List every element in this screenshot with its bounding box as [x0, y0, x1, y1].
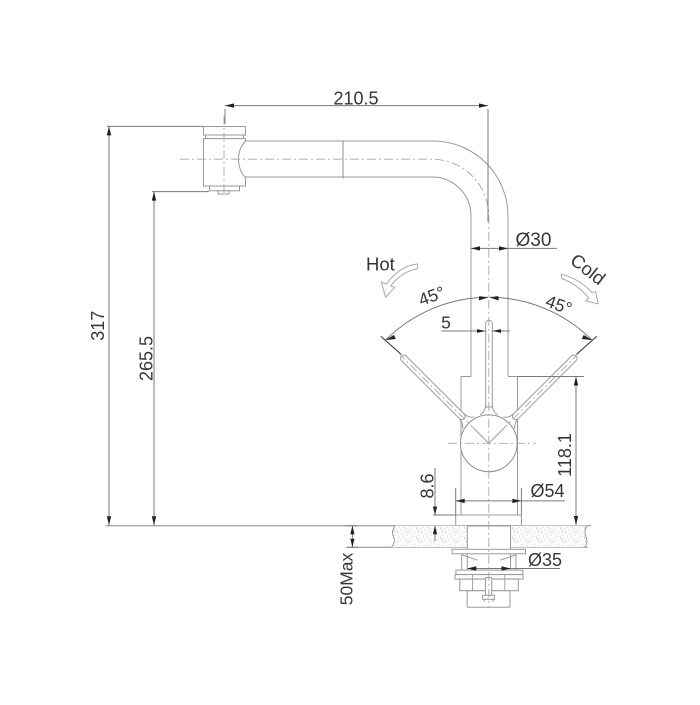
svg-text:8.6: 8.6: [418, 473, 438, 498]
svg-text:Ø30: Ø30: [516, 230, 552, 251]
svg-text:5: 5: [441, 313, 451, 333]
svg-text:Ø35: Ø35: [528, 550, 562, 570]
svg-text:45°: 45°: [543, 291, 575, 319]
svg-text:Ø54: Ø54: [531, 481, 565, 501]
svg-text:50Max: 50Max: [336, 552, 356, 605]
svg-text:210.5: 210.5: [333, 89, 378, 109]
svg-text:45°: 45°: [416, 282, 448, 310]
svg-text:317: 317: [88, 311, 108, 341]
svg-text:265.5: 265.5: [136, 336, 156, 381]
svg-text:Hot: Hot: [366, 254, 395, 275]
svg-text:118.1: 118.1: [555, 433, 575, 477]
